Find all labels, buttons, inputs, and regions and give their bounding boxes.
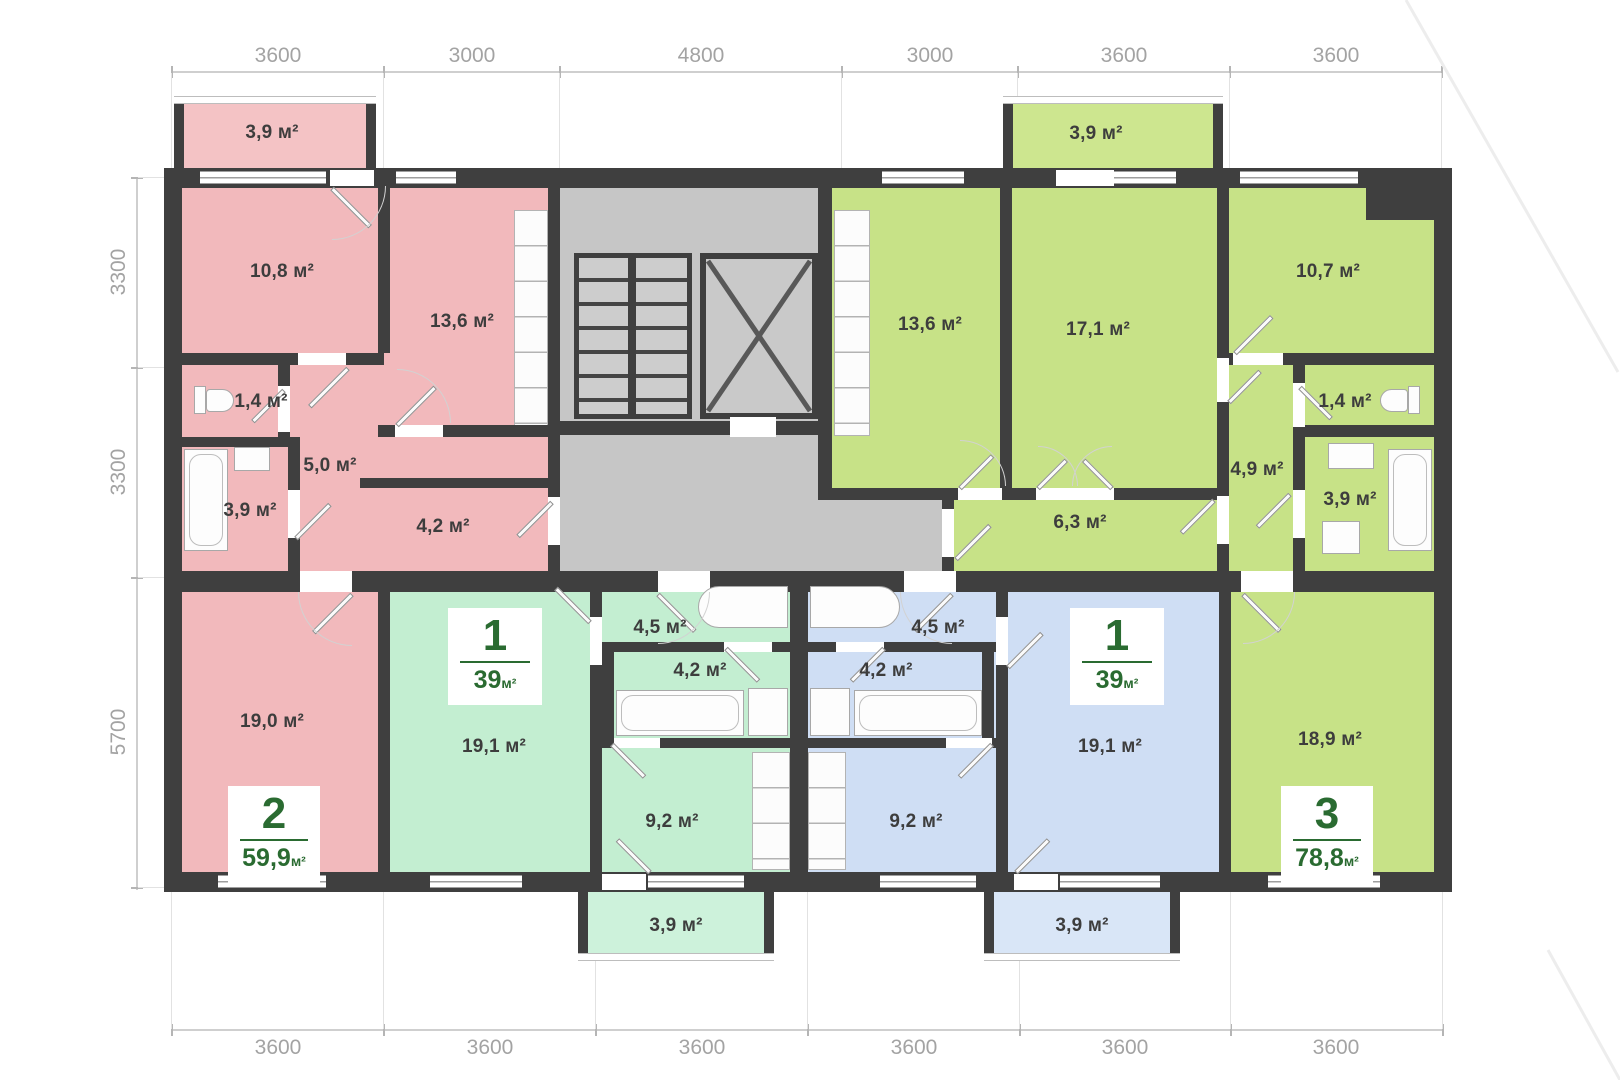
apartment-badge-blue[interactable]: 1 39м² bbox=[1070, 608, 1164, 705]
apartment-badge-mint[interactable]: 1 39м² bbox=[448, 608, 542, 705]
room-label-pink-corridor: 4,2 м² bbox=[416, 516, 469, 538]
badge-divider bbox=[1082, 661, 1152, 663]
room-label-mint-hall: 4,5 м² bbox=[633, 617, 686, 639]
kitchen-counter-lime bbox=[834, 210, 870, 436]
apartment-rooms-count: 2 bbox=[228, 792, 320, 836]
balcony-door-opening bbox=[330, 170, 374, 186]
apartment-rooms-count: 3 bbox=[1281, 792, 1373, 836]
badge-divider bbox=[460, 661, 530, 663]
room-label-lime-wc: 1,4 м² bbox=[1318, 391, 1371, 413]
kitchen-counter-pink bbox=[514, 210, 548, 436]
dim-top-4: 3000 bbox=[907, 44, 954, 68]
dim-left-1: 3300 bbox=[107, 249, 131, 296]
bathtub-icon bbox=[1388, 449, 1432, 551]
sink-counter-icon bbox=[698, 586, 788, 628]
window bbox=[1240, 171, 1358, 184]
sink-counter-icon bbox=[810, 586, 900, 628]
window bbox=[396, 171, 456, 184]
kitchen-counter-mint bbox=[752, 752, 790, 870]
dim-top-2: 3000 bbox=[449, 44, 496, 68]
toilet-icon bbox=[206, 389, 234, 412]
window bbox=[648, 875, 744, 888]
room-label-blue-kitchen: 9,2 м² bbox=[889, 811, 942, 833]
area-unit: м² bbox=[1344, 853, 1359, 869]
elevator-shaft bbox=[700, 253, 818, 419]
room-label-lime-corridor: 6,3 м² bbox=[1053, 512, 1106, 534]
room-label-lime-room1: 17,1 м² bbox=[1066, 319, 1130, 341]
apartment-badge-pink[interactable]: 2 59,9м² bbox=[228, 786, 320, 883]
room-label-mint-kitchen: 9,2 м² bbox=[645, 811, 698, 833]
corridor-area-right bbox=[818, 500, 954, 571]
toilet-icon bbox=[1380, 389, 1408, 412]
toilet-icon bbox=[1408, 386, 1420, 414]
apartment-badge-lime[interactable]: 3 78,8м² bbox=[1281, 786, 1373, 883]
vanity-icon bbox=[810, 688, 850, 736]
dim-bottom-4: 3600 bbox=[891, 1036, 938, 1060]
room-label-pink-hall: 5,0 м² bbox=[303, 455, 356, 477]
sink-icon bbox=[1328, 443, 1374, 469]
balcony-door-opening bbox=[1014, 874, 1058, 890]
window bbox=[430, 875, 522, 888]
bathtub-icon bbox=[184, 449, 228, 551]
window bbox=[1114, 171, 1176, 184]
dim-top-3: 4800 bbox=[678, 44, 725, 68]
dim-left-2: 3300 bbox=[107, 449, 131, 496]
sink-icon bbox=[234, 447, 270, 471]
area-unit: м² bbox=[1123, 675, 1138, 691]
room-label-mint-balcony: 3,9 м² bbox=[649, 915, 702, 937]
room-label-pink-room: 10,8 м² bbox=[250, 261, 314, 283]
window bbox=[880, 875, 976, 888]
dim-bottom-5: 3600 bbox=[1102, 1036, 1149, 1060]
dim-line-left bbox=[136, 178, 138, 890]
dim-bottom-3: 3600 bbox=[679, 1036, 726, 1060]
room-label-pink-living: 19,0 м² bbox=[240, 711, 304, 733]
apartment-rooms-count: 1 bbox=[1070, 614, 1164, 658]
apartment-total-area: 39 bbox=[1096, 666, 1124, 694]
dim-bottom-1: 3600 bbox=[255, 1036, 302, 1060]
room-label-lime-hall: 4,9 м² bbox=[1230, 459, 1283, 481]
room-label-pink-wc: 1,4 м² bbox=[234, 391, 287, 413]
vanity-icon bbox=[748, 688, 788, 736]
dim-bottom-6: 3600 bbox=[1313, 1036, 1360, 1060]
balcony-rail bbox=[1003, 96, 1223, 104]
bathtub-icon bbox=[616, 690, 744, 736]
room-label-lime-kitchen: 13,6 м² bbox=[898, 314, 962, 336]
watermark-diagonal bbox=[1548, 950, 1620, 1080]
room-label-pink-balcony: 3,9 м² bbox=[245, 122, 298, 144]
badge-divider bbox=[1293, 839, 1361, 841]
window bbox=[882, 171, 964, 184]
room-label-blue-bath: 4,2 м² bbox=[859, 660, 912, 682]
dim-bottom-2: 3600 bbox=[467, 1036, 514, 1060]
room-label-lime-balcony: 3,9 м² bbox=[1069, 123, 1122, 145]
room-label-lime-living: 18,9 м² bbox=[1298, 729, 1362, 751]
dim-top-6: 3600 bbox=[1313, 44, 1360, 68]
room-label-blue-living: 19,1 м² bbox=[1078, 736, 1142, 758]
room-label-mint-bath: 4,2 м² bbox=[673, 660, 726, 682]
room-label-lime-bath: 3,9 м² bbox=[1323, 489, 1376, 511]
toilet-icon bbox=[194, 386, 206, 414]
bathtub-icon bbox=[854, 690, 982, 736]
balcony-rail bbox=[174, 96, 376, 104]
balcony-door-opening bbox=[602, 874, 646, 890]
staircase bbox=[574, 253, 692, 419]
badge-divider bbox=[240, 839, 308, 841]
dim-top-5: 3600 bbox=[1101, 44, 1148, 68]
balcony-rail bbox=[984, 953, 1180, 961]
corridor-area bbox=[560, 437, 818, 571]
apartment-total-area: 78,8 bbox=[1295, 844, 1344, 872]
apartment-total-area: 59,9 bbox=[242, 844, 291, 872]
room-label-blue-hall: 4,5 м² bbox=[911, 617, 964, 639]
window bbox=[200, 171, 326, 184]
balcony-rail bbox=[578, 953, 774, 961]
window bbox=[1060, 875, 1160, 888]
room-label-pink-bath: 3,9 м² bbox=[223, 500, 276, 522]
dim-line-top bbox=[172, 71, 1443, 73]
room-label-blue-balcony: 3,9 м² bbox=[1055, 915, 1108, 937]
room-label-lime-room2: 10,7 м² bbox=[1296, 261, 1360, 283]
kitchen-counter-blue bbox=[808, 752, 846, 870]
area-unit: м² bbox=[501, 675, 516, 691]
floor-plan: 3600 3000 4800 3000 3600 3600 3300 3300 … bbox=[0, 0, 1620, 1080]
apartment-rooms-count: 1 bbox=[448, 614, 542, 658]
apartment-total-area: 39 bbox=[474, 666, 502, 694]
room-label-mint-living: 19,1 м² bbox=[462, 736, 526, 758]
dim-top-1: 3600 bbox=[255, 44, 302, 68]
room-label-pink-kitchen: 13,6 м² bbox=[430, 311, 494, 333]
area-unit: м² bbox=[291, 853, 306, 869]
washing-machine-icon bbox=[1322, 521, 1360, 554]
balcony-door-opening bbox=[1056, 170, 1114, 186]
dim-left-3: 5700 bbox=[107, 709, 131, 756]
